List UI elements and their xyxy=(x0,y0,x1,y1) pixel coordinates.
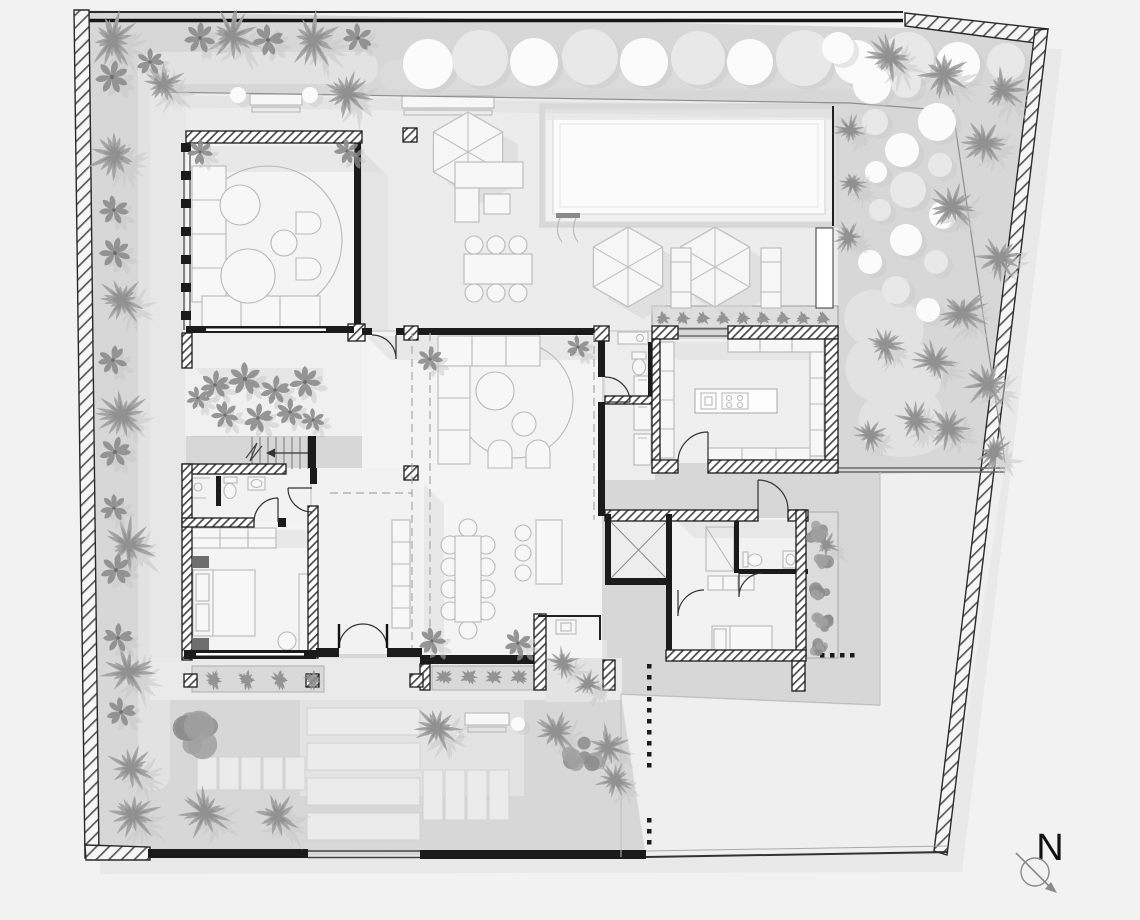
nightstand xyxy=(193,556,209,568)
sun-lounger xyxy=(671,248,691,308)
side-table xyxy=(271,230,297,256)
outdoor-table xyxy=(484,194,510,214)
double-bed xyxy=(193,570,255,636)
lounge-sofa xyxy=(455,162,523,188)
pool xyxy=(540,104,838,242)
garden-bench xyxy=(402,96,494,108)
nightstand xyxy=(193,638,209,650)
kitchen-counter xyxy=(708,448,810,460)
coffee-table xyxy=(476,372,514,410)
sofa-bottom xyxy=(202,296,320,328)
garden-wall xyxy=(816,228,833,308)
toilet xyxy=(224,477,237,483)
dot-run xyxy=(647,818,652,845)
sofa xyxy=(438,336,540,366)
armchair xyxy=(488,440,512,468)
armchair xyxy=(296,258,321,280)
outdoor-dining-table xyxy=(464,254,532,284)
outdoor-sink xyxy=(556,620,576,634)
toilet xyxy=(743,552,748,567)
appliance xyxy=(634,434,651,465)
slab-group xyxy=(197,757,305,790)
dining-table xyxy=(455,536,481,622)
garden-bench xyxy=(465,713,509,725)
kitchen-counter xyxy=(728,339,824,352)
sideboard xyxy=(392,520,410,628)
sofa xyxy=(438,366,470,464)
toilet xyxy=(632,352,646,359)
floor-plan-canvas: N xyxy=(0,0,1140,920)
garden-bench xyxy=(250,94,302,105)
lounge-sofa xyxy=(455,188,479,222)
coffee-table xyxy=(220,185,260,225)
cabinet xyxy=(708,576,754,590)
bar-counter xyxy=(536,520,562,584)
sun-lounger xyxy=(761,248,781,308)
pouf xyxy=(278,632,296,650)
side-table xyxy=(512,412,536,436)
side-yard xyxy=(150,92,186,658)
plan-sheet: N xyxy=(0,0,1140,920)
outdoor-dining-set xyxy=(464,236,532,302)
armchair xyxy=(526,440,550,468)
armchair xyxy=(296,212,321,234)
north-label: N xyxy=(1036,827,1063,869)
coffee-table xyxy=(221,249,275,303)
